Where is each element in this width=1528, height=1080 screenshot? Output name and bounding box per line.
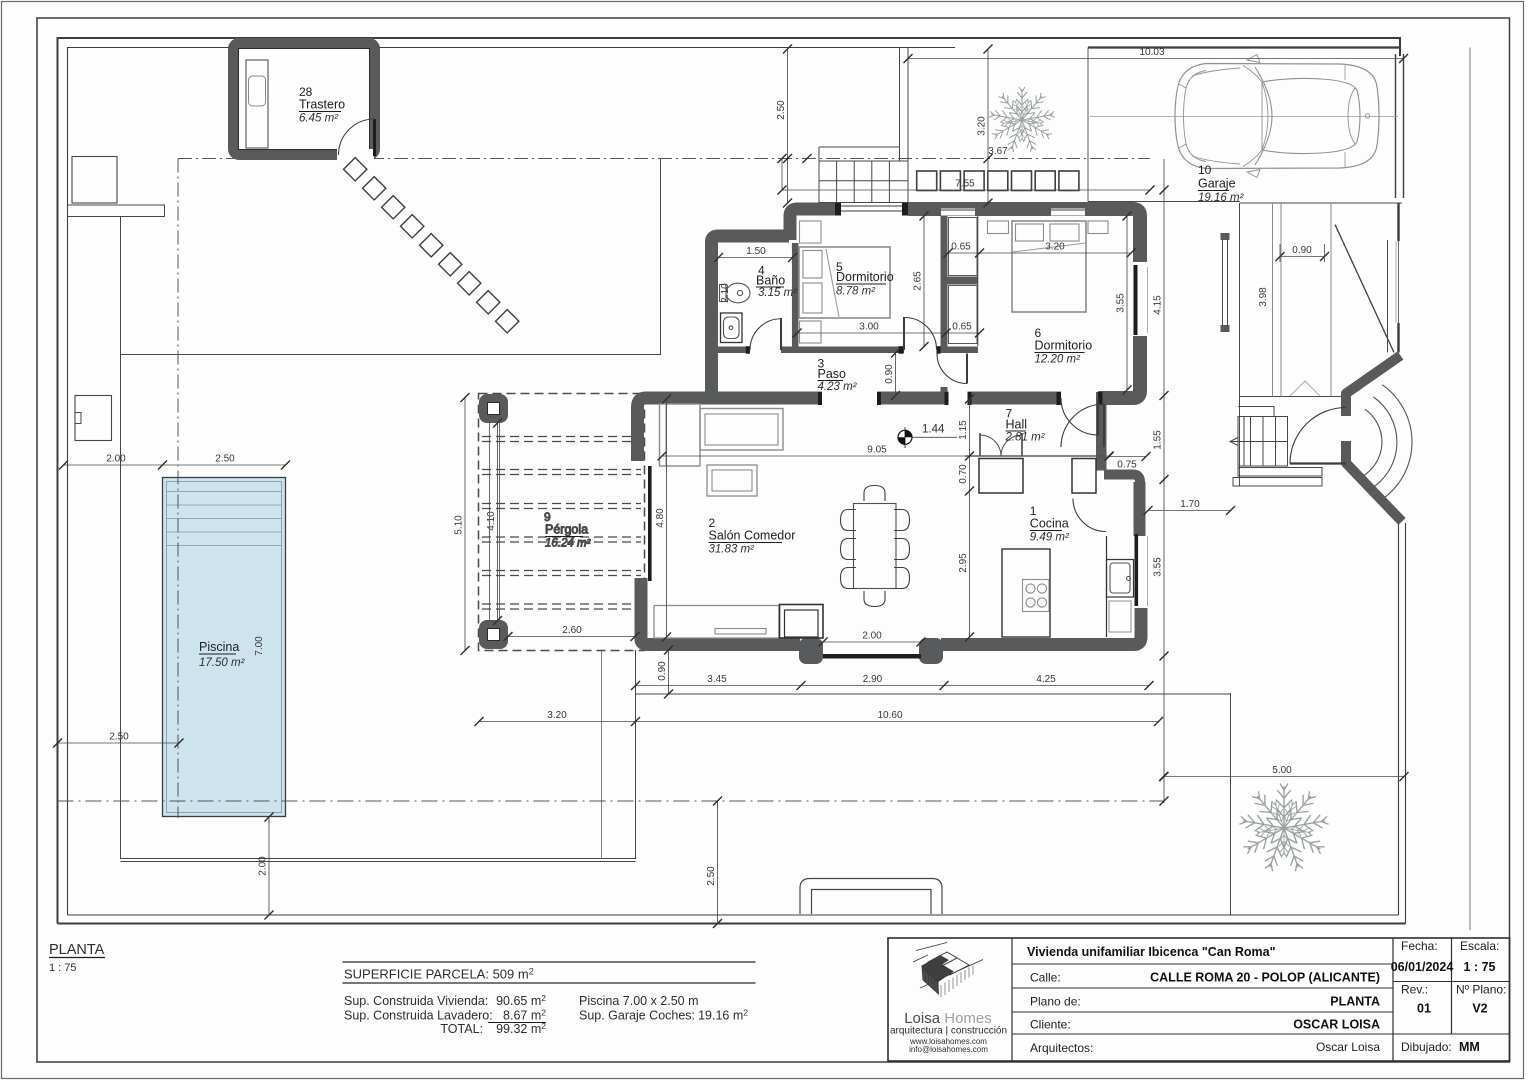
svg-text:8.67 m2: 8.67 m2 xyxy=(503,1008,546,1023)
svg-text:2.10: 2.10 xyxy=(720,283,731,303)
svg-text:4.25: 4.25 xyxy=(1036,674,1056,685)
svg-text:3.20: 3.20 xyxy=(977,116,988,136)
svg-text:19.16 m2: 19.16 m2 xyxy=(698,1008,748,1023)
svg-text:0.90: 0.90 xyxy=(884,364,895,384)
svg-text:Trastero: Trastero xyxy=(299,98,345,112)
svg-text:2.50: 2.50 xyxy=(776,100,787,120)
svg-text:Vivienda unifamiliar Ibicenca: Vivienda unifamiliar Ibicenca "Can Roma" xyxy=(1027,945,1276,959)
svg-text:Dormitorio: Dormitorio xyxy=(1035,339,1093,353)
svg-text:info@loisahomes.com: info@loisahomes.com xyxy=(909,1045,988,1054)
svg-text:arquitectura | construcción: arquitectura | construcción xyxy=(890,1026,1007,1037)
svg-text:SUPERFICIE PARCELA: 509 m2: SUPERFICIE PARCELA: 509 m2 xyxy=(344,967,534,982)
svg-text:2.00: 2.00 xyxy=(106,454,126,465)
svg-text:1.55: 1.55 xyxy=(1153,430,1164,450)
svg-text:9.49 m²: 9.49 m² xyxy=(1030,532,1070,544)
svg-text:0.75: 0.75 xyxy=(1117,460,1137,471)
svg-text:OSCAR LOISA: OSCAR LOISA xyxy=(1293,1018,1380,1032)
svg-text:Baño: Baño xyxy=(756,274,785,288)
svg-text:Rev.:: Rev.: xyxy=(1401,983,1428,997)
svg-text:06/01/2024: 06/01/2024 xyxy=(1391,960,1454,974)
svg-text:3.98: 3.98 xyxy=(1258,287,1269,307)
svg-text:Oscar Loisa: Oscar Loisa xyxy=(1316,1040,1380,1054)
svg-text:0.90: 0.90 xyxy=(1292,245,1312,256)
svg-text:5.10: 5.10 xyxy=(454,515,465,535)
svg-text:0.90: 0.90 xyxy=(657,661,668,681)
svg-text:Nº Plano:: Nº Plano: xyxy=(1456,983,1506,997)
svg-text:10.03: 10.03 xyxy=(1139,47,1164,58)
svg-text:17.50 m²: 17.50 m² xyxy=(199,657,246,669)
svg-text:Sup. Construida Vivienda:: Sup. Construida Vivienda: xyxy=(344,994,488,1008)
svg-text:9.05: 9.05 xyxy=(867,445,887,456)
svg-text:1 : 75: 1 : 75 xyxy=(49,962,77,974)
svg-text:3.20: 3.20 xyxy=(547,710,567,721)
svg-text:3.45: 3.45 xyxy=(707,674,727,685)
svg-text:CALLE ROMA 20 - POLOP (ALICANT: CALLE ROMA 20 - POLOP (ALICANTE) xyxy=(1150,971,1380,985)
svg-text:12.20 m²: 12.20 m² xyxy=(1035,354,1082,366)
svg-text:99.32 m2: 99.32 m2 xyxy=(496,1021,546,1036)
svg-text:0.65: 0.65 xyxy=(952,322,972,333)
svg-text:Hall: Hall xyxy=(1006,418,1028,432)
svg-text:2.95: 2.95 xyxy=(958,553,969,573)
svg-text:Paso: Paso xyxy=(818,367,847,381)
svg-text:2.00: 2.00 xyxy=(258,856,269,876)
svg-text:Salón Comedor: Salón Comedor xyxy=(709,529,796,543)
svg-text:Pérgola: Pérgola xyxy=(545,523,588,537)
svg-text:7.00: 7.00 xyxy=(254,636,265,656)
svg-text:10.60: 10.60 xyxy=(877,710,902,721)
svg-text:4.15: 4.15 xyxy=(1153,295,1164,315)
svg-text:Plano de:: Plano de: xyxy=(1030,995,1081,1009)
svg-text:01: 01 xyxy=(1417,1002,1431,1016)
svg-text:4.23 m²: 4.23 m² xyxy=(818,381,858,393)
svg-text:Dormitorio: Dormitorio xyxy=(836,270,894,284)
svg-text:8.78 m²: 8.78 m² xyxy=(836,286,876,298)
svg-text:TOTAL:: TOTAL: xyxy=(440,1022,483,1036)
svg-text:2.50: 2.50 xyxy=(109,732,129,743)
svg-text:16.24 m²: 16.24 m² xyxy=(545,538,592,550)
svg-text:4.80: 4.80 xyxy=(655,508,666,528)
svg-text:1.44: 1.44 xyxy=(922,424,945,436)
svg-text:V2: V2 xyxy=(1472,1002,1487,1016)
svg-text:2.65: 2.65 xyxy=(913,271,924,291)
svg-text:Arquitectos:: Arquitectos: xyxy=(1030,1041,1093,1055)
svg-text:Sup. Construida Lavadero:: Sup. Construida Lavadero: xyxy=(344,1009,493,1023)
svg-text:3.00: 3.00 xyxy=(859,322,879,333)
svg-text:Dibujado:: Dibujado: xyxy=(1401,1040,1452,1054)
svg-text:31.83 m²: 31.83 m² xyxy=(709,544,756,556)
svg-text:2.00: 2.00 xyxy=(862,631,882,642)
svg-text:1.15: 1.15 xyxy=(958,420,969,440)
svg-text:1.70: 1.70 xyxy=(1180,499,1200,510)
svg-text:0.65: 0.65 xyxy=(951,242,971,253)
svg-text:0.70: 0.70 xyxy=(958,464,969,484)
svg-text:MM: MM xyxy=(1459,1040,1480,1054)
svg-text:Piscina: Piscina xyxy=(199,640,239,654)
svg-text:PLANTA: PLANTA xyxy=(49,942,105,958)
svg-text:Sup. Garaje Coches:: Sup. Garaje Coches: xyxy=(579,1009,695,1023)
svg-text:6.45 m²: 6.45 m² xyxy=(299,113,339,125)
svg-text:Calle:: Calle: xyxy=(1030,971,1061,985)
svg-text:5.00: 5.00 xyxy=(1272,765,1292,776)
svg-text:3.55: 3.55 xyxy=(1116,293,1127,313)
svg-text:Piscina 7.00 x 2.50 m: Piscina 7.00 x 2.50 m xyxy=(579,994,699,1008)
svg-text:7.55: 7.55 xyxy=(955,179,975,190)
svg-text:Escala:: Escala: xyxy=(1460,939,1499,953)
svg-text:90.65 m2: 90.65 m2 xyxy=(496,993,546,1008)
svg-text:Garaje: Garaje xyxy=(1198,177,1236,191)
svg-text:2.50: 2.50 xyxy=(215,454,235,465)
svg-text:2.81 m²: 2.81 m² xyxy=(1005,432,1046,444)
svg-text:19.16 m²: 19.16 m² xyxy=(1198,192,1245,204)
svg-text:1.50: 1.50 xyxy=(746,246,766,257)
svg-text:1 : 75: 1 : 75 xyxy=(1464,960,1496,974)
svg-text:3.15 m²: 3.15 m² xyxy=(758,287,798,299)
svg-text:Cocina: Cocina xyxy=(1030,517,1069,531)
svg-text:Fecha:: Fecha: xyxy=(1401,939,1438,953)
svg-text:PLANTA: PLANTA xyxy=(1330,995,1380,1009)
svg-text:2.60: 2.60 xyxy=(562,625,582,636)
svg-text:3.67: 3.67 xyxy=(988,146,1008,157)
svg-text:Loisa Homes: Loisa Homes xyxy=(904,1010,992,1027)
svg-text:10: 10 xyxy=(1198,163,1212,177)
svg-text:2.90: 2.90 xyxy=(863,674,883,685)
svg-text:Cliente:: Cliente: xyxy=(1030,1018,1071,1032)
svg-text:2.50: 2.50 xyxy=(706,866,717,886)
svg-text:3.20: 3.20 xyxy=(1045,242,1065,253)
svg-text:3.55: 3.55 xyxy=(1153,557,1164,577)
svg-text:4.10: 4.10 xyxy=(486,511,497,531)
